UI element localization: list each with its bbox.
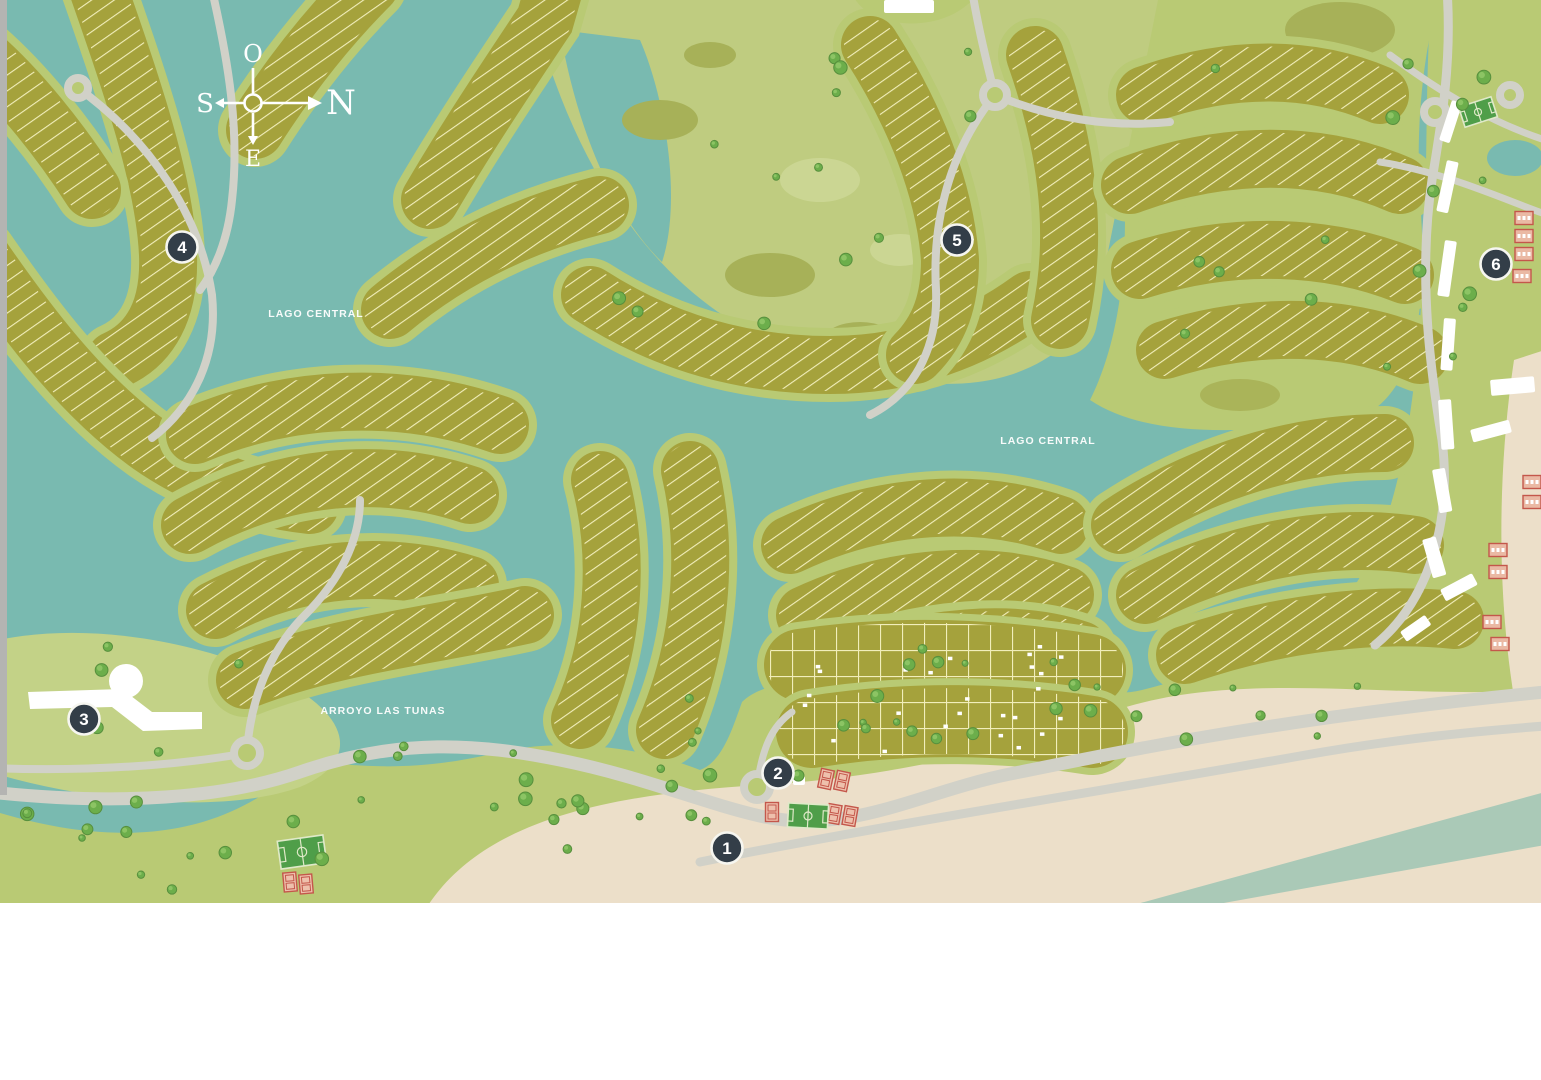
map-label-lago-central-1: LAGO CENTRAL xyxy=(268,308,363,320)
masterplan-page: LAGO CENTRAL LAGO CENTRAL ARROYO LAS TUN… xyxy=(0,0,1541,1080)
compass-label-s: S xyxy=(196,89,214,119)
compass-label-o: O xyxy=(243,40,263,68)
map-marker-2: 2 xyxy=(763,758,794,789)
map-marker-1: 1 xyxy=(712,833,743,864)
footer: 1 Acceso 2 Club House y área deportiva 3… xyxy=(0,903,1541,1080)
svg-text:6: 6 xyxy=(1491,255,1500,274)
map-edge-bar xyxy=(0,0,7,795)
map-label-arroyo-las-tunas: ARROYO LAS TUNAS xyxy=(320,705,445,717)
map-canvas: LAGO CENTRAL LAGO CENTRAL ARROYO LAS TUN… xyxy=(0,0,1541,903)
svg-text:4: 4 xyxy=(177,238,187,257)
svg-text:1: 1 xyxy=(722,839,731,858)
map-marker-4: 4 xyxy=(167,232,198,263)
compass-label-n: N xyxy=(326,83,356,123)
map-label-lago-central-2: LAGO CENTRAL xyxy=(1000,435,1095,447)
map-marker-6: 6 xyxy=(1481,249,1512,280)
svg-text:3: 3 xyxy=(79,710,88,729)
compass-label-e: E xyxy=(245,147,261,172)
svg-text:2: 2 xyxy=(773,764,782,783)
svg-text:5: 5 xyxy=(952,231,961,250)
map-marker-5: 5 xyxy=(942,225,973,256)
map-marker-3: 3 xyxy=(69,704,100,735)
